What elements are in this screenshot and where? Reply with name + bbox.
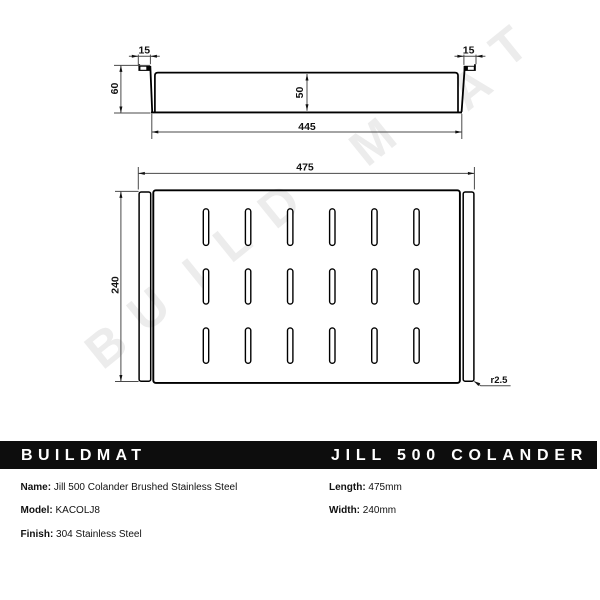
- svg-text:50: 50: [294, 87, 306, 99]
- svg-text:60: 60: [109, 83, 121, 95]
- svg-text:U: U: [117, 276, 180, 342]
- svg-text:T: T: [479, 15, 538, 78]
- svg-text:15: 15: [463, 45, 475, 57]
- svg-text:475: 475: [296, 161, 314, 173]
- svg-text:L: L: [203, 210, 262, 273]
- svg-text:240: 240: [109, 276, 121, 294]
- svg-text:D: D: [247, 173, 310, 239]
- svg-text:A: A: [439, 55, 502, 121]
- svg-text:M: M: [339, 107, 407, 177]
- svg-text:445: 445: [298, 121, 316, 133]
- svg-text:I: I: [172, 248, 218, 300]
- svg-text:r2.5: r2.5: [491, 375, 509, 386]
- svg-text:B: B: [74, 313, 137, 379]
- svg-text:15: 15: [138, 45, 150, 57]
